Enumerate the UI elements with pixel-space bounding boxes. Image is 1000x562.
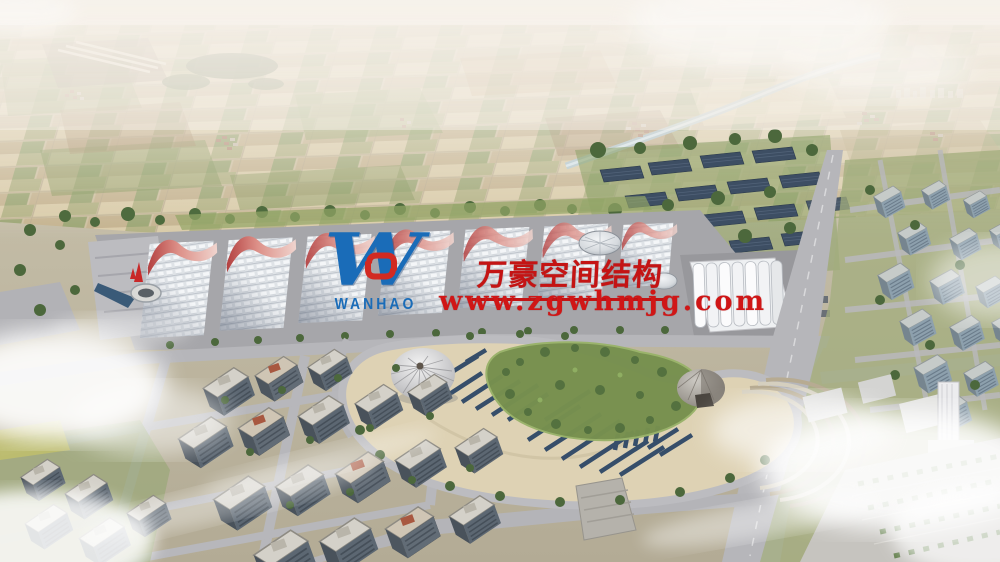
atmospheric-haze	[0, 0, 1000, 130]
dome-hall	[579, 231, 621, 255]
round-hall	[131, 284, 161, 302]
round-pavilion	[651, 273, 677, 289]
aerial-rendering	[0, 0, 1000, 562]
screenshot-root: W WANHAO 万豪空间结构 www.zgwhmjg.com	[0, 0, 1000, 562]
